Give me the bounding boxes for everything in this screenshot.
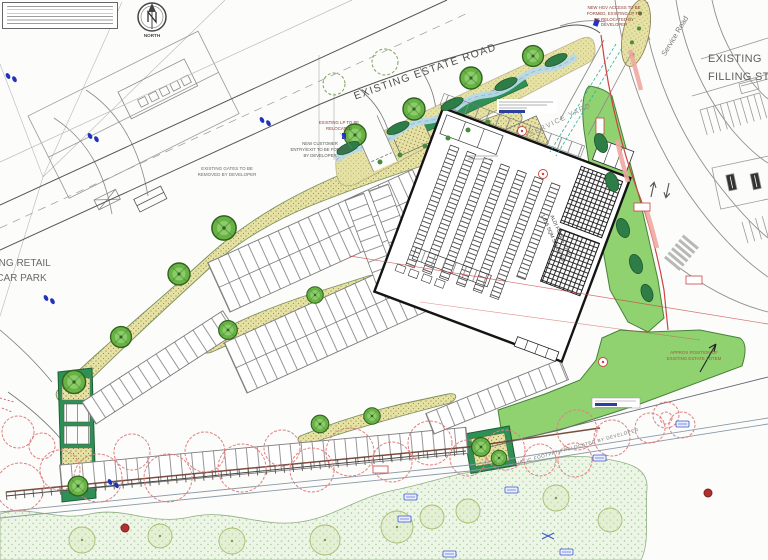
filling-station-label: EXISTING FILLING STATION <box>708 50 768 86</box>
gates-removed-note: EXISTING GATES TO BE REMOVED BY DEVELOPE… <box>188 166 266 178</box>
notes-text-lines <box>7 6 113 25</box>
lamp-post-note: EXISTING LP TO BE RELOCATED <box>308 120 370 132</box>
site-plan: EXISTING ESTATE ROAD Service Road EXISTI… <box>0 0 768 560</box>
hgv-access-note: NEW HGV ACCESS TO BE FORMED, EXISTING LP… <box>570 5 658 28</box>
pedestrian-crossing <box>664 235 699 271</box>
totem-note: APPROX POSITION OF EXISTING ESTATE TOTEM <box>652 350 736 362</box>
road-arrows <box>648 182 672 199</box>
customer-entry-note: NEW CUSTOMER ENTRY/EXIT TO BE FORMED BY … <box>276 141 364 158</box>
parking-row <box>82 311 237 424</box>
retail-car-park-label: EXISTING RETAIL PARK CAR PARK <box>0 256 127 286</box>
notes-box <box>2 2 118 29</box>
north-arrow-icon <box>138 3 166 31</box>
north-label: NORTH <box>137 33 167 39</box>
